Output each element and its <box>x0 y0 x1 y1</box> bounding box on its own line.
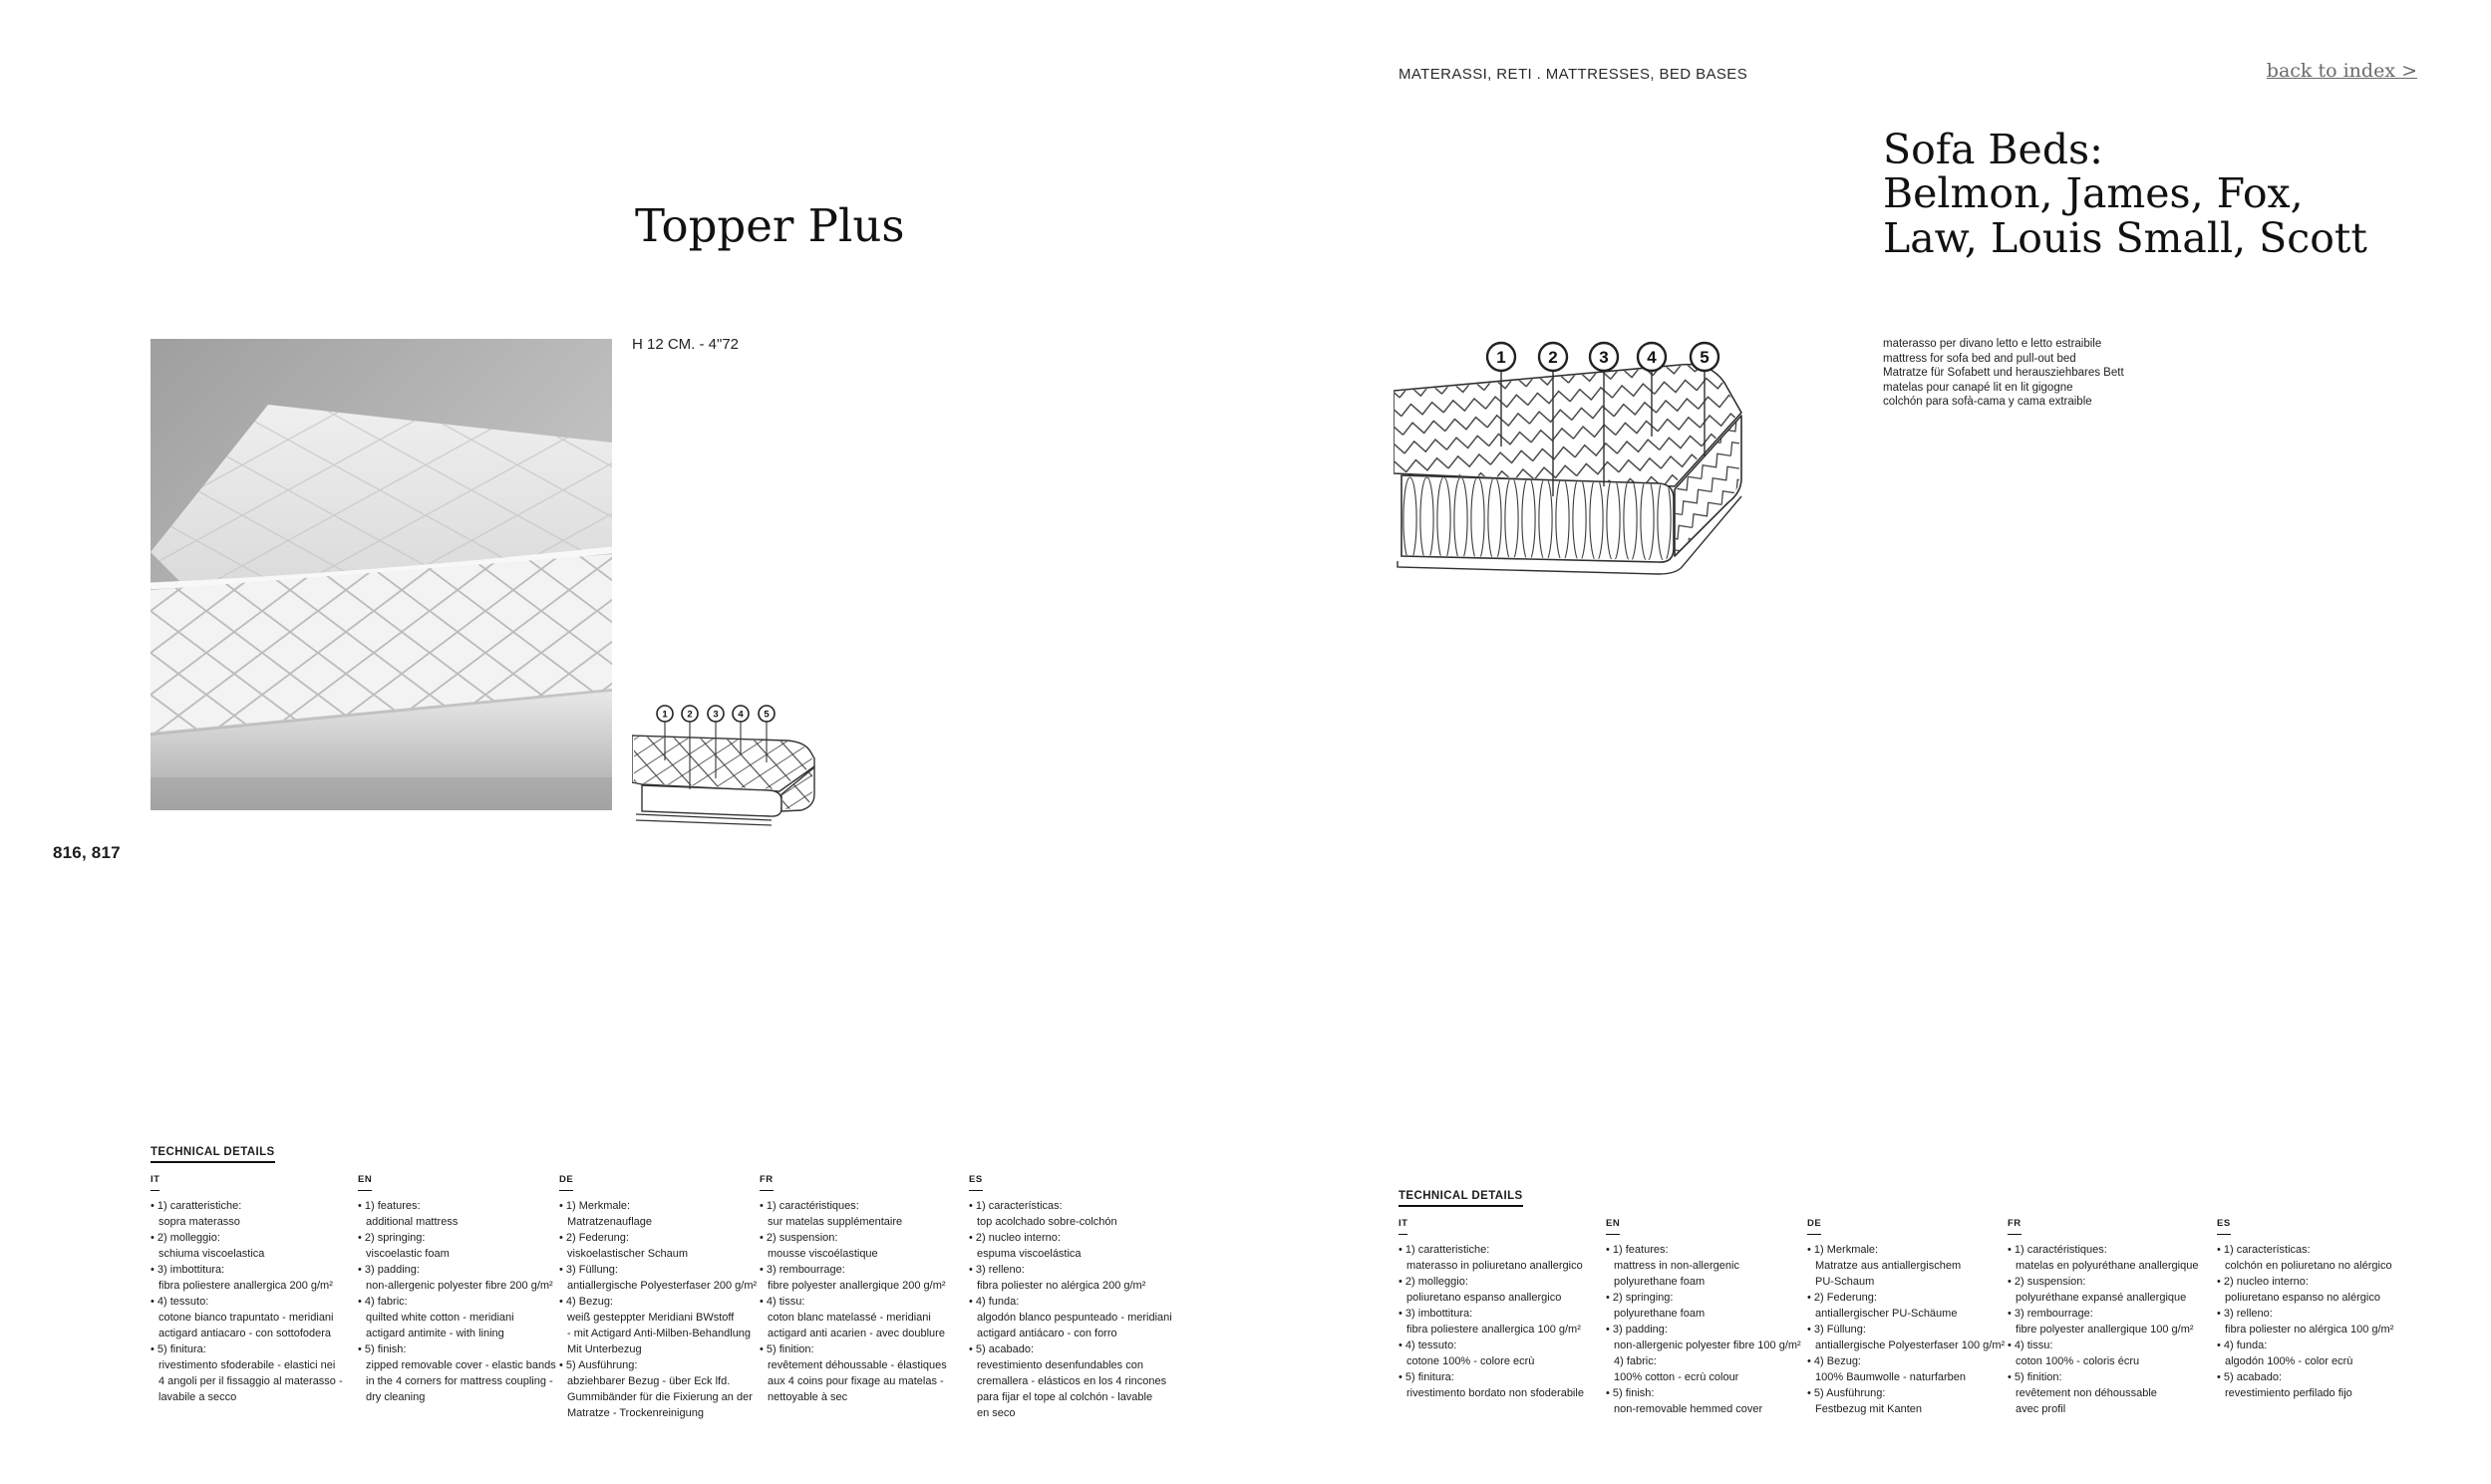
tech-item-head: • 2) suspension: <box>768 1230 964 1246</box>
tech-line: Festbezug mit Kanten <box>1815 1401 2012 1417</box>
tech-line: actigard antiacaro - con sottofodera <box>158 1326 355 1341</box>
tech-item-head: • 4) tessuto: <box>158 1294 355 1310</box>
tech-item-head: • 2) springing: <box>1614 1290 1810 1306</box>
topper-callouts: 1 2 3 4 5 <box>657 706 775 722</box>
height-note: H 12 CM. - 4"72 <box>632 336 739 353</box>
tech-item-head: • 5) finish: <box>1614 1385 1810 1401</box>
tech-item: • 1) caratteristiche:sopra materasso <box>151 1198 355 1230</box>
tech-item-head: • 5) Ausführung: <box>1815 1385 2012 1401</box>
tech-item: • 4) fabric:quilted white cotton - merid… <box>358 1294 562 1341</box>
tech-item-head: • 5) finitura: <box>158 1341 355 1357</box>
topper-diagram-graphic: 1 2 3 4 5 <box>632 691 819 828</box>
tech-item: • 2) Federung:antiallergischer PU-Schäum… <box>1807 1290 2012 1322</box>
tech-item: • 1) características:colchón en poliuret… <box>2217 1242 2421 1274</box>
tech-item-head: • 3) Füllung: <box>1815 1322 2012 1337</box>
tech-column-es: ES• 1) características:colchón en poliur… <box>2217 1216 2421 1401</box>
callout-number: 1 <box>662 710 668 721</box>
tech-item-head: • 3) relleno: <box>977 1262 1173 1278</box>
tech-column-fr: FR• 1) caractéristiques:sur matelas supp… <box>760 1172 964 1405</box>
tech-line: non-allergenic polyester fibre 100 g/m² <box>1614 1337 1810 1353</box>
tech-item: • 3) Füllung:antiallergische Polyesterfa… <box>1807 1322 2012 1353</box>
tech-item: • 4) funda:algodón blanco pespunteado - … <box>969 1294 1173 1341</box>
tech-line: in the 4 corners for mattress coupling - <box>366 1373 562 1389</box>
tech-item-head: • 2) molleggio: <box>1406 1274 1603 1290</box>
tech-item: • 2) suspension:polyuréthane expansé ana… <box>2008 1274 2212 1306</box>
sofa-mattress-diagram-graphic: 1 2 3 4 5 <box>1394 327 1742 576</box>
tech-line: aux 4 coins pour fixage au matelas - <box>768 1373 964 1389</box>
tech-line: cotone 100% - colore ecrù <box>1406 1353 1603 1369</box>
description-line-fr: matelas pour canapé lit en lit gigogne <box>1883 381 2124 396</box>
tech-line: viskoelastischer Schaum <box>567 1246 764 1262</box>
tech-item-head: • 1) features: <box>1614 1242 1810 1258</box>
tech-item: • 2) nucleo interno:poliuretano espanso … <box>2217 1274 2421 1306</box>
tech-item: • 1) caratteristiche:materasso in poliur… <box>1399 1242 1603 1274</box>
tech-line: poliuretano espanso anallergico <box>1406 1290 1603 1306</box>
topper-diagram: 1 2 3 4 5 <box>632 691 819 828</box>
tech-line: fibra poliester no alérgica 200 g/m² <box>977 1278 1173 1294</box>
tech-line: antiallergischer PU-Schäume <box>1815 1306 2012 1322</box>
tech-item-head: • 1) características: <box>2225 1242 2421 1258</box>
language-label: FR <box>760 1172 964 1191</box>
tech-item: • 5) finition:revêtement non déhoussable… <box>2008 1369 2212 1417</box>
back-to-index-link[interactable]: back to index > <box>2267 60 2417 82</box>
title-line: Law, Louis Small, Scott <box>1883 216 2367 260</box>
tech-item: • 1) features:additional mattress <box>358 1198 562 1230</box>
tech-line: schiuma viscoelastica <box>158 1246 355 1262</box>
language-label: ES <box>2217 1216 2421 1235</box>
tech-item: • 3) relleno:fibra poliester no alérgica… <box>2217 1306 2421 1337</box>
tech-line: actigard anti acarien - avec doublure <box>768 1326 964 1341</box>
tech-item-head: • 4) tissu: <box>2016 1337 2212 1353</box>
language-label: FR <box>2008 1216 2212 1235</box>
tech-column-it: IT• 1) caratteristiche:sopra materasso• … <box>151 1172 355 1405</box>
tech-item: • 5) finition:revêtement déhoussable - é… <box>760 1341 964 1405</box>
language-label: IT <box>151 1172 355 1191</box>
tech-item: • 5) finish:zipped removable cover - ela… <box>358 1341 562 1405</box>
tech-item-head: • 3) imbottitura: <box>158 1262 355 1278</box>
tech-line: - mit Actigard Anti-Milben-Behandlung <box>567 1326 764 1341</box>
tech-item-head: • 1) características: <box>977 1198 1173 1214</box>
tech-line: fibre polyester anallergique 200 g/m² <box>768 1278 964 1294</box>
tech-line: abziehbarer Bezug - über Eck lfd. <box>567 1373 764 1389</box>
tech-item: • 4) tessuto:cotone bianco trapuntato - … <box>151 1294 355 1341</box>
language-label: DE <box>559 1172 764 1191</box>
tech-column-de: DE• 1) Merkmale:Matratzenauflage• 2) Fed… <box>559 1172 764 1421</box>
tech-line: antiallergische Polyesterfaser 100 g/m² <box>1815 1337 2012 1353</box>
tech-item-head: • 5) acabado: <box>977 1341 1173 1357</box>
mattress-photo <box>151 339 612 810</box>
callout-number: 3 <box>713 710 718 721</box>
tech-column-en: EN• 1) features:mattress in non-allergen… <box>1606 1216 1810 1417</box>
tech-line: non-allergenic polyester fibre 200 g/m² <box>366 1278 562 1294</box>
tech-line: poliuretano espanso no alérgico <box>2225 1290 2421 1306</box>
callout-number: 5 <box>1700 348 1709 367</box>
tech-item-head: • 2) Federung: <box>567 1230 764 1246</box>
tech-item: • 1) caractéristiques:sur matelas supplé… <box>760 1198 964 1230</box>
tech-item-head: • 4) Bezug: <box>1815 1353 2012 1369</box>
tech-line: revêtement déhoussable - élastiques <box>768 1357 964 1373</box>
tech-line: coton 100% - coloris écru <box>2016 1353 2212 1369</box>
language-label: EN <box>1606 1216 1810 1235</box>
tech-line: weiß gesteppter Meridiani BWstoff <box>567 1310 764 1326</box>
tech-item: • 5) finitura:rivestimento sfoderabile -… <box>151 1341 355 1405</box>
tech-line: lavabile a secco <box>158 1389 355 1405</box>
tech-item: 4) fabric:100% cotton - ecrù colour <box>1606 1353 1810 1385</box>
tech-item-head: • 3) imbottitura: <box>1406 1306 1603 1322</box>
tech-line: rivestimento bordato non sfoderabile <box>1406 1385 1603 1401</box>
tech-item: • 4) Bezug:100% Baumwolle - naturfarben <box>1807 1353 2012 1385</box>
tech-item: • 3) rembourrage:fibre polyester analler… <box>2008 1306 2212 1337</box>
page-numbers: 816, 817 <box>53 843 121 863</box>
tech-line: sur matelas supplémentaire <box>768 1214 964 1230</box>
tech-line: non-removable hemmed cover <box>1614 1401 1810 1417</box>
technical-details-left: TECHNICAL DETAILS IT• 1) caratteristiche… <box>151 1142 1197 1421</box>
tech-line: mattress in non-allergenic <box>1614 1258 1810 1274</box>
tech-line: nettoyable à sec <box>768 1389 964 1405</box>
tech-item-head: • 3) rembourrage: <box>768 1262 964 1278</box>
tech-item: • 3) imbottitura:fibra poliestere analle… <box>151 1262 355 1294</box>
tech-item-head: • 2) Federung: <box>1815 1290 2012 1306</box>
tech-item: • 5) finitura:rivestimento bordato non s… <box>1399 1369 1603 1401</box>
technical-details-right: TECHNICAL DETAILS IT• 1) caratteristiche… <box>1399 1186 2445 1465</box>
tech-line: additional mattress <box>366 1214 562 1230</box>
tech-line: algodón blanco pespunteado - meridiani <box>977 1310 1173 1326</box>
tech-item: • 1) features:mattress in non-allergenic… <box>1606 1242 1810 1290</box>
tech-item-head: • 2) suspension: <box>2016 1274 2212 1290</box>
tech-line: mousse viscoélastique <box>768 1246 964 1262</box>
tech-item-head: • 1) Merkmale: <box>567 1198 764 1214</box>
tech-item: • 5) acabado:revestimiento desenfundable… <box>969 1341 1173 1421</box>
tech-item-head: • 2) molleggio: <box>158 1230 355 1246</box>
tech-item-head: • 4) Bezug: <box>567 1294 764 1310</box>
language-label: IT <box>1399 1216 1603 1235</box>
tech-item-head: • 5) finition: <box>2016 1369 2212 1385</box>
tech-item-head: • 5) finish: <box>366 1341 562 1357</box>
tech-item: • 3) padding:non-allergenic polyester fi… <box>1606 1322 1810 1353</box>
tech-line: fibra poliester no alérgica 100 g/m² <box>2225 1322 2421 1337</box>
description-line-it: materasso per divano letto e letto estra… <box>1883 337 2124 352</box>
tech-line: 4 angoli per il fissaggio al materasso - <box>158 1373 355 1389</box>
tech-item-head: • 3) relleno: <box>2225 1306 2421 1322</box>
tech-item: • 2) molleggio:poliuretano espanso anall… <box>1399 1274 1603 1306</box>
tech-column-en: EN• 1) features:additional mattress• 2) … <box>358 1172 562 1405</box>
tech-item: • 2) nucleo interno:espuma viscoelástica <box>969 1230 1173 1262</box>
tech-line: matelas en polyuréthane anallergique <box>2016 1258 2212 1274</box>
tech-item-head: • 1) caractéristiques: <box>768 1198 964 1214</box>
tech-item: • 4) funda:algodón 100% - color ecrù <box>2217 1337 2421 1369</box>
tech-line: rivestimento sfoderabile - elastici nei <box>158 1357 355 1373</box>
tech-item: • 2) suspension:mousse viscoélastique <box>760 1230 964 1262</box>
tech-line: algodón 100% - color ecrù <box>2225 1353 2421 1369</box>
tech-item-head: • 4) tissu: <box>768 1294 964 1310</box>
tech-item-head: • 5) finition: <box>768 1341 964 1357</box>
tech-line: polyurethane foam <box>1614 1306 1810 1322</box>
tech-line: sopra materasso <box>158 1214 355 1230</box>
language-label: EN <box>358 1172 562 1191</box>
tech-line: Matratze - Trockenreinigung <box>567 1405 764 1421</box>
tech-item-head: • 2) nucleo interno: <box>2225 1274 2421 1290</box>
tech-line: actigard antimite - with lining <box>366 1326 562 1341</box>
callout-number: 1 <box>1496 348 1505 367</box>
product-title-topper-plus: Topper Plus <box>635 199 904 252</box>
technical-details-heading: TECHNICAL DETAILS <box>1399 1190 1523 1207</box>
callout-number: 4 <box>1647 348 1657 367</box>
tech-item: • 2) springing:polyurethane foam <box>1606 1290 1810 1322</box>
tech-item: • 5) finish:non-removable hemmed cover <box>1606 1385 1810 1417</box>
description-line-es: colchón para sofà-cama y cama extraible <box>1883 395 2124 410</box>
tech-line: cremallera - elásticos en los 4 rincones <box>977 1373 1173 1389</box>
tech-item-head: • 2) springing: <box>366 1230 562 1246</box>
tech-item: • 4) tissu:coton 100% - coloris écru <box>2008 1337 2212 1369</box>
tech-line: quilted white cotton - meridiani <box>366 1310 562 1326</box>
tech-item: • 2) molleggio:schiuma viscoelastica <box>151 1230 355 1262</box>
tech-item: • 2) springing:viscoelastic foam <box>358 1230 562 1262</box>
tech-item: • 4) Bezug:weiß gesteppter Meridiani BWs… <box>559 1294 764 1357</box>
description-line-de: Matratze für Sofabett und herausziehbare… <box>1883 366 2124 381</box>
product-title-sofa-beds: Sofa Beds: Belmon, James, Fox, Law, Loui… <box>1883 128 2367 260</box>
tech-item-head: • 3) Füllung: <box>567 1262 764 1278</box>
tech-item-head: • 1) caractéristiques: <box>2016 1242 2212 1258</box>
tech-item: • 1) Merkmale:Matratze aus antiallergisc… <box>1807 1242 2012 1290</box>
tech-line: para fijar el tope al colchón - lavable <box>977 1389 1173 1405</box>
tech-line: actigard antiácaro - con forro <box>977 1326 1173 1341</box>
tech-item: • 3) imbottitura:fibra poliestere analle… <box>1399 1306 1603 1337</box>
tech-line: top acolchado sobre-colchón <box>977 1214 1173 1230</box>
tech-line: dry cleaning <box>366 1389 562 1405</box>
tech-item-head: • 1) caratteristiche: <box>158 1198 355 1214</box>
tech-item-head: • 3) padding: <box>366 1262 562 1278</box>
tech-item: • 5) acabado:revestimiento perfilado fij… <box>2217 1369 2421 1401</box>
tech-item-head: • 5) acabado: <box>2225 1369 2421 1385</box>
tech-line: espuma viscoelástica <box>977 1246 1173 1262</box>
tech-line: 100% Baumwolle - naturfarben <box>1815 1369 2012 1385</box>
callout-number: 3 <box>1599 348 1608 367</box>
tech-line: coton blanc matelassé - meridiani <box>768 1310 964 1326</box>
tech-line: revestimiento perfilado fijo <box>2225 1385 2421 1401</box>
sofa-bed-description: materasso per divano letto e letto estra… <box>1883 337 2124 410</box>
tech-line: PU-Schaum <box>1815 1274 2012 1290</box>
tech-item: • 1) caractéristiques:matelas en polyuré… <box>2008 1242 2212 1274</box>
tech-column-de: DE• 1) Merkmale:Matratze aus antiallergi… <box>1807 1216 2012 1417</box>
tech-item: • 5) Ausführung:abziehbarer Bezug - über… <box>559 1357 764 1421</box>
tech-line: antiallergische Polyesterfaser 200 g/m² <box>567 1278 764 1294</box>
tech-item: • 3) padding:non-allergenic polyester fi… <box>358 1262 562 1294</box>
tech-item-head: • 4) funda: <box>2225 1337 2421 1353</box>
tech-line: Mit Unterbezug <box>567 1341 764 1357</box>
tech-item-head: • 1) caratteristiche: <box>1406 1242 1603 1258</box>
callout-number: 4 <box>738 710 744 721</box>
tech-item-head: • 1) features: <box>366 1198 562 1214</box>
callout-number: 2 <box>687 710 692 721</box>
tech-item-head: • 5) Ausführung: <box>567 1357 764 1373</box>
tech-line: colchón en poliuretano no alérgico <box>2225 1258 2421 1274</box>
language-label: DE <box>1807 1216 2012 1235</box>
tech-item-head: 4) fabric: <box>1614 1353 1810 1369</box>
tech-line: viscoelastic foam <box>366 1246 562 1262</box>
tech-item-head: • 2) nucleo interno: <box>977 1230 1173 1246</box>
tech-line: revêtement non déhoussable <box>2016 1385 2212 1401</box>
tech-line: avec profil <box>2016 1401 2212 1417</box>
tech-column-it: IT• 1) caratteristiche:materasso in poli… <box>1399 1216 1603 1401</box>
tech-item: • 3) relleno:fibra poliester no alérgica… <box>969 1262 1173 1294</box>
tech-item-head: • 3) rembourrage: <box>2016 1306 2212 1322</box>
tech-column-fr: FR• 1) caractéristiques:matelas en polyu… <box>2008 1216 2212 1417</box>
tech-line: fibra poliestere anallergica 200 g/m² <box>158 1278 355 1294</box>
tech-item: • 4) tissu:coton blanc matelassé - merid… <box>760 1294 964 1341</box>
title-line: Sofa Beds: <box>1883 128 2367 171</box>
tech-item-head: • 4) tessuto: <box>1406 1337 1603 1353</box>
tech-item-head: • 1) Merkmale: <box>1815 1242 2012 1258</box>
callout-number: 2 <box>1548 348 1557 367</box>
tech-item: • 4) tessuto:cotone 100% - colore ecrù <box>1399 1337 1603 1369</box>
language-label: ES <box>969 1172 1173 1191</box>
tech-item-head: • 4) funda: <box>977 1294 1173 1310</box>
tech-line: materasso in poliuretano anallergico <box>1406 1258 1603 1274</box>
tech-line: polyurethane foam <box>1614 1274 1810 1290</box>
tech-line: fibre polyester anallergique 100 g/m² <box>2016 1322 2212 1337</box>
technical-details-columns: IT• 1) caratteristiche:materasso in poli… <box>1399 1216 2445 1465</box>
category-header: MATERASSI, RETI . MATTRESSES, BED BASES <box>1399 66 1747 83</box>
tech-item: • 1) características:top acolchado sobre… <box>969 1198 1173 1230</box>
tech-line: Matratze aus antiallergischem <box>1815 1258 2012 1274</box>
tech-line: fibra poliestere anallergica 100 g/m² <box>1406 1322 1603 1337</box>
tech-item: • 1) Merkmale:Matratzenauflage <box>559 1198 764 1230</box>
tech-column-es: ES• 1) características:top acolchado sob… <box>969 1172 1173 1421</box>
catalog-page: MATERASSI, RETI . MATTRESSES, BED BASES … <box>0 0 2491 1484</box>
tech-item: • 3) Füllung:antiallergische Polyesterfa… <box>559 1262 764 1294</box>
tech-line: revestimiento desenfundables con <box>977 1357 1173 1373</box>
tech-item: • 2) Federung:viskoelastischer Schaum <box>559 1230 764 1262</box>
technical-details-columns: IT• 1) caratteristiche:sopra materasso• … <box>151 1172 1197 1421</box>
tech-line: cotone bianco trapuntato - meridiani <box>158 1310 355 1326</box>
callout-number: 5 <box>764 710 770 721</box>
tech-item: • 3) rembourrage:fibre polyester analler… <box>760 1262 964 1294</box>
tech-item-head: • 4) fabric: <box>366 1294 562 1310</box>
sofa-mattress-diagram: 1 2 3 4 5 <box>1394 327 1742 576</box>
tech-item-head: • 5) finitura: <box>1406 1369 1603 1385</box>
title-line: Belmon, James, Fox, <box>1883 171 2367 215</box>
tech-line: en seco <box>977 1405 1173 1421</box>
tech-line: polyuréthane expansé anallergique <box>2016 1290 2212 1306</box>
mattress-photo-graphic <box>151 339 612 810</box>
tech-item-head: • 3) padding: <box>1614 1322 1810 1337</box>
tech-line: Gummibänder für die Fixierung an der <box>567 1389 764 1405</box>
tech-line: Matratzenauflage <box>567 1214 764 1230</box>
technical-details-heading: TECHNICAL DETAILS <box>151 1146 275 1163</box>
tech-line: 100% cotton - ecrù colour <box>1614 1369 1810 1385</box>
tech-line: zipped removable cover - elastic bands <box>366 1357 562 1373</box>
tech-item: • 5) Ausführung:Festbezug mit Kanten <box>1807 1385 2012 1417</box>
description-line-en: mattress for sofa bed and pull-out bed <box>1883 352 2124 367</box>
